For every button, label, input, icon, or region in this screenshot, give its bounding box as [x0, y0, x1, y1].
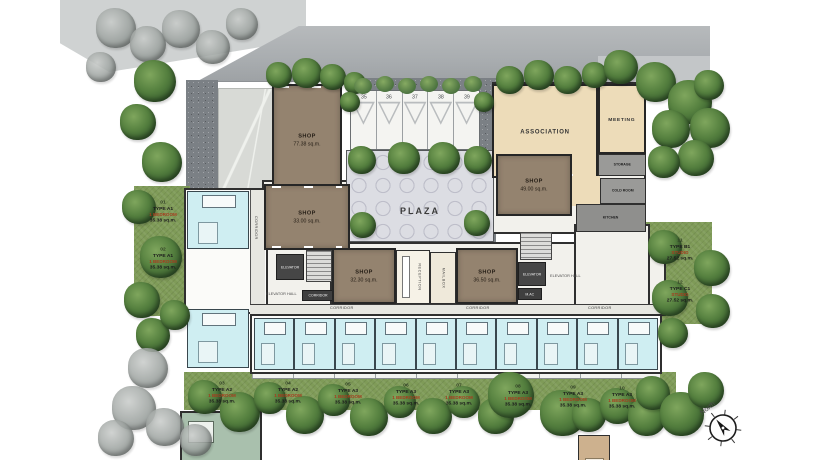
unit-area: 35.38 sq.m.: [559, 403, 587, 409]
unit-type: TYPE A3: [608, 392, 636, 398]
unit-bedroom: 1 BEDROOM: [149, 259, 177, 265]
unit-bedroom: 1 BEDROOM: [504, 396, 532, 402]
unit-bedroom: 1 BEDROOM: [392, 395, 420, 401]
unit-label: 11 TYPE B1 STUDIO 27.52 sq.m.: [667, 238, 693, 262]
unit-label: 12 TYPE C1 STUDIO 27.52 sq.m.: [667, 280, 693, 304]
unit-area: 35.38 sq.m.: [208, 399, 236, 405]
unit-bedroom: 1 BEDROOM: [608, 398, 636, 404]
unit-type: TYPE A3: [504, 390, 532, 396]
unit-area: 35.38 sq.m.: [334, 400, 362, 406]
unit-bedroom: 1 BEDROOM: [149, 212, 177, 218]
unit-type: TYPE A2: [208, 387, 236, 393]
unit-area: 35.38 sq.m.: [149, 265, 177, 271]
corridor-label: CORRIDOR: [588, 306, 612, 310]
unit-area: 27.52 sq.m.: [667, 298, 693, 304]
unit-area: 35.38 sq.m.: [392, 401, 420, 407]
unit-bedroom: 1 BEDROOM: [334, 394, 362, 400]
unit-type: TYPE A1: [149, 253, 177, 259]
unit-label: 04 TYPE A2 1 BEDROOM 35.38 sq.m.: [274, 381, 302, 405]
unit-type: TYPE B1: [667, 244, 693, 250]
unit-label: 09 TYPE A3 1 BEDROOM 35.38 sq.m.: [559, 385, 587, 409]
compass-rose: North: [694, 396, 752, 454]
unit-type: TYPE C1: [667, 286, 693, 292]
unit-bedroom: 1 BEDROOM: [445, 395, 473, 401]
unit-label: 10 TYPE A3 1 BEDROOM 35.38 sq.m.: [608, 386, 636, 410]
floor-plan: SHOP 77.38 sq.m. 35 ▽ 36 ▽ 37 ▽ 38 ▽: [0, 0, 830, 460]
unit-type: TYPE A3: [334, 388, 362, 394]
unit-label: 07 TYPE A3 1 BEDROOM 35.38 sq.m.: [445, 383, 473, 407]
unit-type: TYPE A1: [149, 206, 177, 212]
unit-label: 08 TYPE A3 1 BEDROOM 35.38 sq.m.: [504, 384, 532, 408]
unit-area: 35.38 sq.m.: [274, 399, 302, 405]
corridor-label: CORRIDOR: [466, 306, 490, 310]
corridor-label: CORRIDOR: [254, 216, 258, 240]
unit-label: 03 TYPE A2 1 BEDROOM 35.38 sq.m.: [208, 381, 236, 405]
unit-bedroom: 1 BEDROOM: [274, 393, 302, 399]
unit-bedroom: 1 BEDROOM: [559, 397, 587, 403]
unit-area: 35.38 sq.m.: [149, 218, 177, 224]
labels-layer: CORRIDOR CORRIDOR CORRIDOR CORRIDOR 01 T…: [0, 0, 830, 460]
unit-label: 06 TYPE A3 1 BEDROOM 35.38 sq.m.: [392, 383, 420, 407]
unit-type: TYPE A3: [392, 389, 420, 395]
unit-area: 27.52 sq.m.: [667, 256, 693, 262]
unit-type: TYPE A3: [559, 391, 587, 397]
corridor-label: CORRIDOR: [330, 306, 354, 310]
unit-type: TYPE A3: [445, 389, 473, 395]
unit-type: TYPE A2: [274, 387, 302, 393]
unit-label: 05 TYPE A3 1 BEDROOM 35.38 sq.m.: [334, 382, 362, 406]
unit-area: 35.38 sq.m.: [504, 402, 532, 408]
north-label: North: [699, 401, 717, 417]
unit-bedroom: 1 BEDROOM: [208, 393, 236, 399]
unit-label: 01 TYPE A1 1 BEDROOM 35.38 sq.m.: [149, 200, 177, 224]
unit-area: 35.38 sq.m.: [445, 401, 473, 407]
unit-label: 02 TYPE A1 1 BEDROOM 35.38 sq.m.: [149, 247, 177, 271]
unit-area: 35.38 sq.m.: [608, 404, 636, 410]
